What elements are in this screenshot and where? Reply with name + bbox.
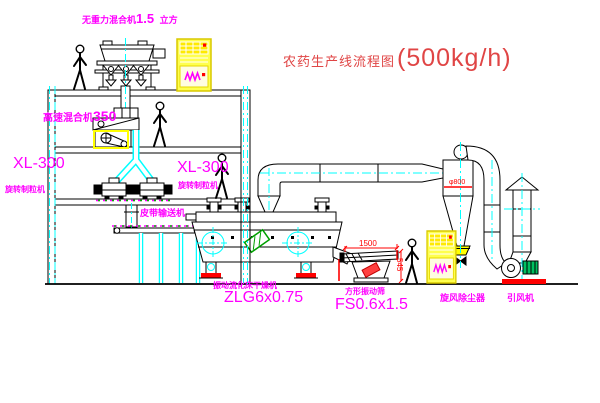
dimension-cyclone-diameter: φ800 bbox=[449, 179, 465, 186]
dimension-sieve-length: 1500 bbox=[359, 240, 377, 248]
label-high-speed-mixer: 高速混合机350 bbox=[43, 109, 116, 124]
label-sieve-model: FS0.6x1.5 bbox=[335, 297, 408, 313]
person-figure bbox=[406, 239, 418, 283]
conveyor-legs bbox=[141, 233, 198, 283]
label-fan: 引风机 bbox=[507, 294, 534, 303]
process-flow-drawing: 农药生产线流程图 (500kg/h) 无重力混合机1.5 立方 高速混合机350… bbox=[0, 0, 600, 403]
title-text: 农药生产线流程图 bbox=[283, 51, 395, 70]
square-vibrating-sieve bbox=[339, 250, 398, 282]
label-gravity-mixer: 无重力混合机1.5 立方 bbox=[82, 12, 178, 25]
label-cyclone: 旋风除尘器 bbox=[440, 294, 485, 303]
exhaust-duct bbox=[258, 164, 443, 212]
person-figure bbox=[154, 102, 166, 146]
granulator-right bbox=[132, 178, 172, 199]
induced-draft-fan bbox=[502, 259, 547, 285]
person-figure bbox=[74, 45, 86, 89]
title-capacity: (500kg/h) bbox=[397, 44, 512, 73]
label-granulator-right-model: XL-300 bbox=[177, 160, 229, 176]
label-belt-conveyor: 皮带输送机 bbox=[140, 209, 185, 218]
control-cabinet-top bbox=[177, 39, 211, 91]
granulator-left bbox=[94, 178, 134, 199]
label-sieve-name: 方形振动筛 bbox=[345, 288, 385, 296]
label-granulator-left-model: XL-300 bbox=[13, 156, 65, 172]
control-cabinet-ground bbox=[427, 231, 456, 283]
drawing-title: 农药生产线流程图 (500kg/h) bbox=[283, 44, 512, 73]
label-granulator-left-name: 旋转制粒机 bbox=[5, 186, 45, 194]
label-granulator-right-name: 旋转制粒机 bbox=[178, 182, 218, 190]
label-dryer-model: ZLG6x0.75 bbox=[224, 290, 303, 306]
gravity-free-mixer bbox=[95, 41, 165, 90]
dimension-sieve-height: 545 bbox=[395, 258, 403, 271]
dryer-feet bbox=[199, 273, 318, 278]
